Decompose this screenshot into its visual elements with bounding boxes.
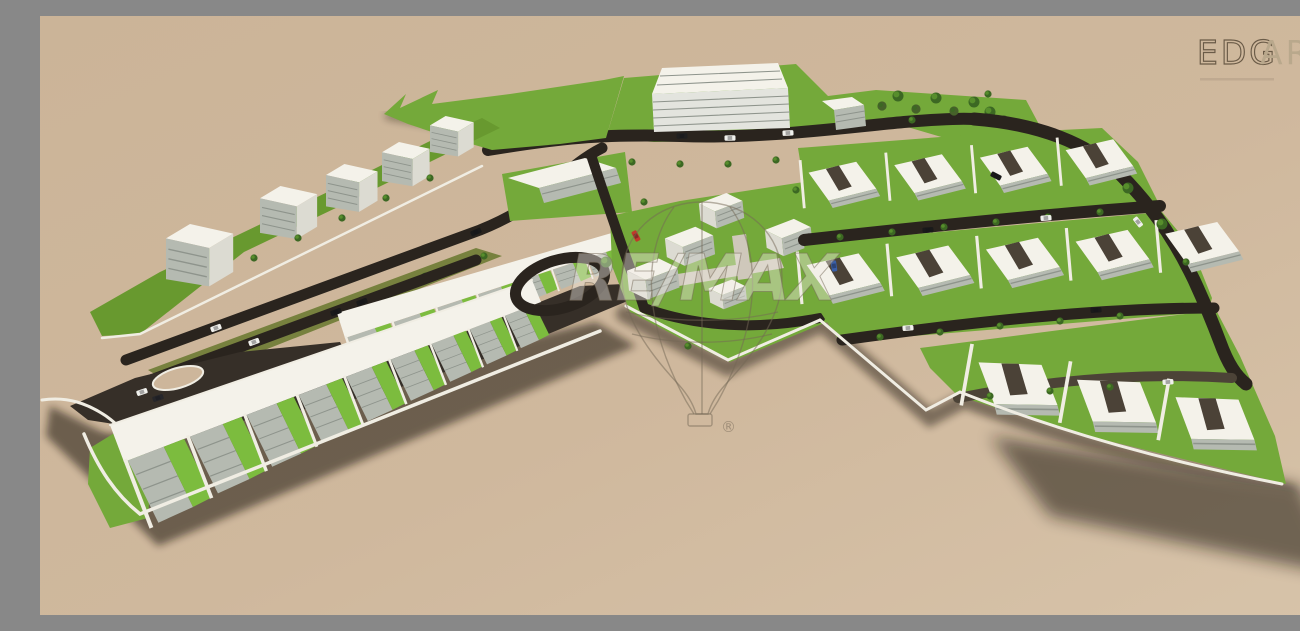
tree	[772, 156, 779, 163]
tree	[250, 254, 257, 261]
tree	[1046, 387, 1053, 394]
tree	[676, 160, 683, 167]
tree	[1056, 317, 1063, 324]
tree	[936, 328, 943, 335]
car	[676, 133, 687, 139]
tree	[724, 160, 731, 167]
tree	[940, 223, 947, 230]
tree	[1157, 219, 1168, 230]
tree	[931, 93, 942, 104]
apartment-block	[260, 186, 317, 239]
tree	[984, 90, 991, 97]
tree	[1123, 183, 1134, 194]
car	[902, 325, 913, 331]
watermark-brand-text: RE/MAX	[569, 242, 841, 316]
logo-tagline-rule	[1200, 78, 1274, 81]
tree	[294, 234, 301, 241]
tree	[684, 342, 691, 349]
architectural-rendering: Bird's-eye 3D render of a planned housin…	[40, 16, 1300, 615]
car	[1040, 215, 1051, 221]
tree	[969, 97, 980, 108]
tree	[338, 214, 345, 221]
apartment-block	[430, 116, 474, 157]
tree	[1106, 383, 1113, 390]
tree	[893, 91, 904, 102]
tree	[640, 198, 647, 205]
tree	[1182, 258, 1189, 265]
car	[1090, 307, 1101, 313]
apartment-block	[326, 164, 378, 212]
car	[782, 130, 793, 136]
car	[922, 227, 933, 233]
tree	[382, 194, 389, 201]
tree	[836, 233, 843, 240]
large-apartment-building	[652, 63, 790, 132]
tree	[1096, 208, 1103, 215]
tree	[996, 322, 1003, 329]
tree	[888, 228, 895, 235]
logo-text-secondary: ART	[1260, 33, 1300, 72]
apartment-block	[382, 142, 430, 186]
tree	[949, 106, 958, 115]
tree	[628, 158, 635, 165]
tree	[992, 218, 999, 225]
apartment-block	[166, 224, 233, 286]
tree	[877, 101, 886, 110]
tree	[792, 186, 799, 193]
tree	[426, 174, 433, 181]
tree	[986, 392, 993, 399]
car	[1162, 379, 1173, 385]
tree	[876, 333, 883, 340]
rendering-canvas: Bird's-eye 3D render of a planned housin…	[40, 16, 1300, 615]
tree	[908, 116, 915, 123]
tree	[480, 252, 487, 259]
tree	[1116, 312, 1123, 319]
tree	[911, 104, 920, 113]
registered-trademark-symbol: ®	[721, 418, 736, 436]
car	[724, 135, 735, 141]
